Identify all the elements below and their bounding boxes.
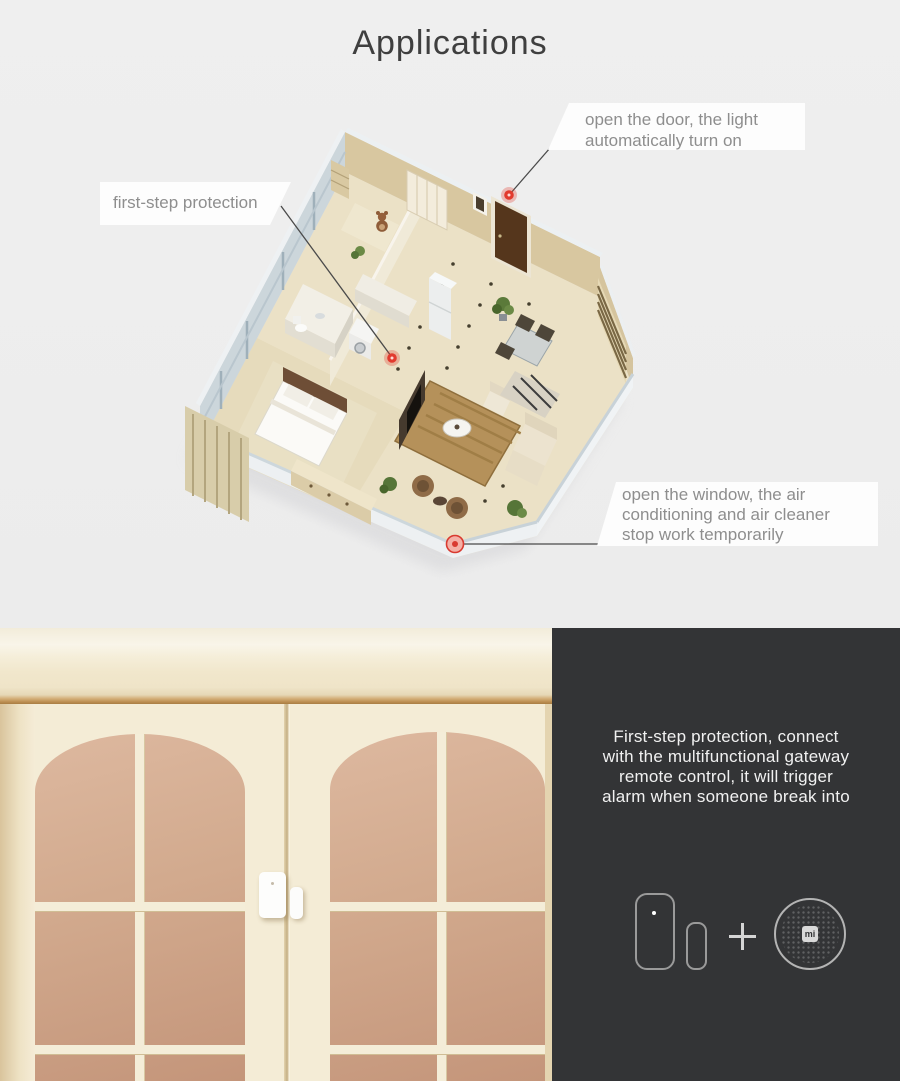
callout-open-door: open the door, the light automatically t…	[548, 103, 805, 150]
sensor-led	[271, 882, 274, 885]
mi-logo: mi	[802, 926, 818, 942]
door-window-sensor-icon	[635, 893, 675, 970]
panel-line: alarm when someone break into	[552, 787, 900, 807]
info-panel: First-step protection, connect with the …	[552, 628, 900, 1081]
muntin	[35, 902, 245, 911]
door-stile	[545, 704, 552, 1081]
sensor-magnet	[290, 887, 303, 919]
panel-line: First-step protection, connect	[552, 727, 900, 747]
muntin	[35, 1045, 245, 1054]
callout-line: conditioning and air cleaner	[622, 505, 872, 525]
door-photo	[0, 628, 552, 1081]
callout-line: open the door, the light	[585, 109, 797, 130]
door-window-sensor	[259, 872, 286, 918]
door-glass-right	[330, 732, 545, 1081]
door-glass-left	[35, 734, 245, 1081]
marker-door-sensor	[501, 187, 517, 203]
muntin	[330, 1045, 545, 1054]
mi-gateway-icon: mi	[774, 898, 846, 970]
marker-window-sensor	[447, 536, 464, 553]
panel-line: remote control, it will trigger	[552, 767, 900, 787]
panel-paragraph: First-step protection, connect with the …	[552, 727, 900, 807]
callout-open-window: open the window, the air conditioning an…	[597, 482, 878, 546]
muntin	[330, 902, 545, 911]
marker-kitchen-sensor	[384, 350, 400, 366]
plus-icon	[729, 923, 756, 950]
sensor-magnet-icon	[686, 922, 707, 970]
door-stile	[0, 704, 35, 1081]
page-title: Applications	[0, 24, 900, 63]
leader-line-door	[510, 148, 550, 194]
callout-line: open the window, the air	[622, 485, 872, 505]
product-page: Applications open the door, the light au…	[0, 0, 900, 1081]
callout-line: first-step protection	[113, 192, 291, 213]
callout-line: automatically turn on	[585, 130, 797, 151]
sensor-led-icon	[652, 911, 656, 915]
crown-molding	[0, 628, 552, 704]
callout-first-step-protection: first-step protection	[100, 182, 291, 225]
callout-line: stop work temporarily	[622, 525, 872, 545]
panel-line: with the multifunctional gateway	[552, 747, 900, 767]
